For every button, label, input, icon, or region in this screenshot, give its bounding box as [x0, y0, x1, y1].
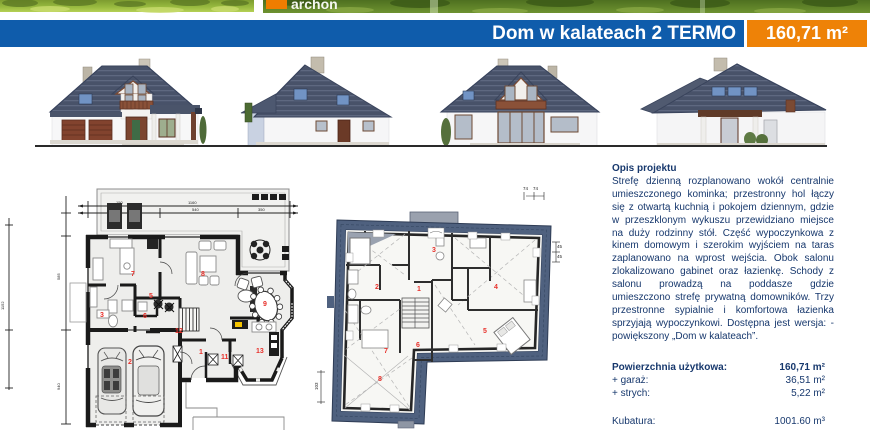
svg-text:4: 4 [494, 284, 498, 291]
svg-text:13: 13 [256, 348, 264, 355]
svg-text:1: 1 [417, 286, 421, 293]
svg-text:1160: 1160 [188, 200, 197, 205]
svg-text:7: 7 [131, 271, 135, 278]
svg-text:45: 45 [557, 254, 563, 259]
svg-text:archon: archon [291, 0, 338, 12]
svg-text:8: 8 [378, 376, 382, 383]
svg-text:5: 5 [149, 293, 153, 300]
svg-text:12: 12 [175, 328, 183, 335]
svg-text:9: 9 [263, 301, 267, 308]
svg-text:6: 6 [416, 342, 420, 349]
svg-text:1: 1 [199, 349, 203, 356]
svg-text:6: 6 [143, 313, 147, 320]
svg-text:11: 11 [221, 354, 229, 361]
svg-text:540: 540 [192, 207, 199, 212]
svg-text:2: 2 [128, 359, 132, 366]
svg-text:2: 2 [375, 284, 379, 291]
svg-text:45: 45 [557, 244, 563, 249]
svg-text:74: 74 [523, 186, 529, 191]
svg-text:5: 5 [483, 328, 487, 335]
svg-text:1152: 1152 [0, 301, 5, 310]
svg-text:350: 350 [258, 207, 265, 212]
svg-text:940: 940 [56, 383, 61, 390]
svg-text:585: 585 [56, 273, 61, 280]
svg-text:8: 8 [201, 271, 205, 278]
svg-text:7: 7 [384, 348, 388, 355]
svg-text:74: 74 [533, 186, 539, 191]
svg-text:3: 3 [432, 247, 436, 254]
svg-text:103: 103 [315, 382, 319, 390]
svg-text:3: 3 [100, 312, 104, 319]
